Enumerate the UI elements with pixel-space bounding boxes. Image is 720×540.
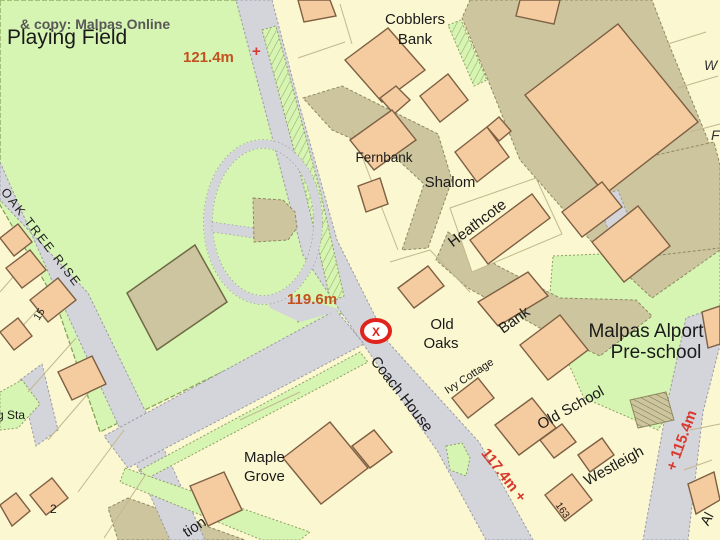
label-cobblers-bank: Bank <box>398 31 433 48</box>
label-partial: g Sta <box>0 408 25 422</box>
label-old-oaks: Oaks <box>423 335 458 352</box>
label-preschool: Malpas Alport <box>588 321 704 342</box>
incident-marker[interactable]: X <box>362 320 390 342</box>
label-shalom: Shalom <box>425 174 476 191</box>
label-fernbank: Fernbank <box>355 150 412 165</box>
spot-height-cross: + <box>252 43 261 60</box>
label-maple-grove: Maple <box>244 449 285 466</box>
spot-height: 119.6m <box>287 291 337 308</box>
label-preschool: Pre-school <box>611 342 702 363</box>
label-cobblers-bank: Cobblers <box>385 11 445 28</box>
label-maple-grove: Grove <box>244 468 285 485</box>
map-canvas[interactable]: Playing Field & copy: Malpas Online 121.… <box>0 0 720 540</box>
spot-height: 121.4m <box>183 49 234 66</box>
label-partial: F <box>711 127 720 143</box>
label-partial: W <box>704 57 719 73</box>
marker-x-icon: X <box>372 325 380 339</box>
house-number: 2 <box>50 502 57 516</box>
watermark: & copy: Malpas Online <box>20 16 170 32</box>
label-old-oaks: Old <box>430 316 453 333</box>
